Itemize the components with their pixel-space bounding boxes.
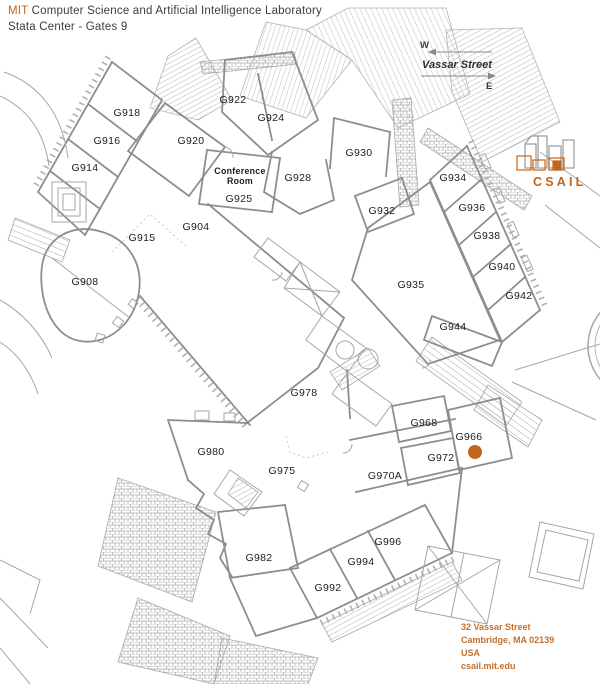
room-label-g904: G904 <box>183 221 210 233</box>
room-label-g982: G982 <box>246 552 273 564</box>
room-label-g915: G915 <box>129 232 156 244</box>
room-label-g932: G932 <box>369 205 396 217</box>
room-label-g996: G996 <box>375 536 402 548</box>
room-label-g928: G928 <box>285 172 312 184</box>
page-title: Computer Science and Artificial Intellig… <box>32 5 322 17</box>
room-label-g938: G938 <box>474 230 501 242</box>
page-header: MIT Computer Science and Artificial Inte… <box>8 3 322 35</box>
room-label-g916: G916 <box>94 135 121 147</box>
street-name: Vassar Street <box>422 59 493 71</box>
room-label-g940: G940 <box>489 261 516 273</box>
room-label-conference-room: ConferenceRoom <box>214 166 265 186</box>
room-label-g918: G918 <box>114 107 141 119</box>
address-block: 32 Vassar StreetCambridge, MA 02139USAcs… <box>461 622 554 671</box>
room-label-g944: G944 <box>440 321 467 333</box>
address-line-3: USA <box>461 648 481 658</box>
csail-logo: CSAIL <box>517 136 587 189</box>
room-label-g966: G966 <box>456 431 483 443</box>
page-title-line: MIT Computer Science and Artificial Inte… <box>8 3 322 19</box>
room-label-g925: G925 <box>226 193 253 205</box>
room-label-g930: G930 <box>346 147 373 159</box>
room-label-g934: G934 <box>440 172 467 184</box>
room-label-g936: G936 <box>459 202 486 214</box>
page-subtitle: Stata Center - Gates 9 <box>8 19 322 35</box>
floor-plan-map: W Vassar Street E <box>0 0 600 684</box>
room-label-g922: G922 <box>220 94 247 106</box>
room-label-g972: G972 <box>428 452 455 464</box>
room-label-g970a: G970A <box>368 470 402 482</box>
room-label-g942: G942 <box>506 290 533 302</box>
csail-wordmark: CSAIL <box>533 175 587 189</box>
room-label-g994: G994 <box>348 556 375 568</box>
csail-skyline-icon <box>517 136 574 170</box>
room-label-g978: G978 <box>291 387 318 399</box>
room-label-g920: G920 <box>178 135 205 147</box>
location-marker-dot <box>468 445 482 459</box>
room-label-g914: G914 <box>72 162 99 174</box>
room-label-g968: G968 <box>411 417 438 429</box>
room-label-g908: G908 <box>72 276 99 288</box>
room-label-g980: G980 <box>198 446 225 458</box>
address-line-4: csail.mit.edu <box>461 661 516 671</box>
mit-brand: MIT <box>8 5 28 17</box>
floor-plan-page: MIT Computer Science and Artificial Inte… <box>0 0 600 684</box>
compass-west-label: W <box>420 40 429 51</box>
room-label-g924: G924 <box>258 112 285 124</box>
address-line-1: 32 Vassar Street <box>461 622 531 632</box>
room-label-g975: G975 <box>269 465 296 477</box>
room-label-g935: G935 <box>398 279 425 291</box>
compass-east-label: E <box>486 81 492 92</box>
room-label-g992: G992 <box>315 582 342 594</box>
address-line-2: Cambridge, MA 02139 <box>461 635 554 645</box>
